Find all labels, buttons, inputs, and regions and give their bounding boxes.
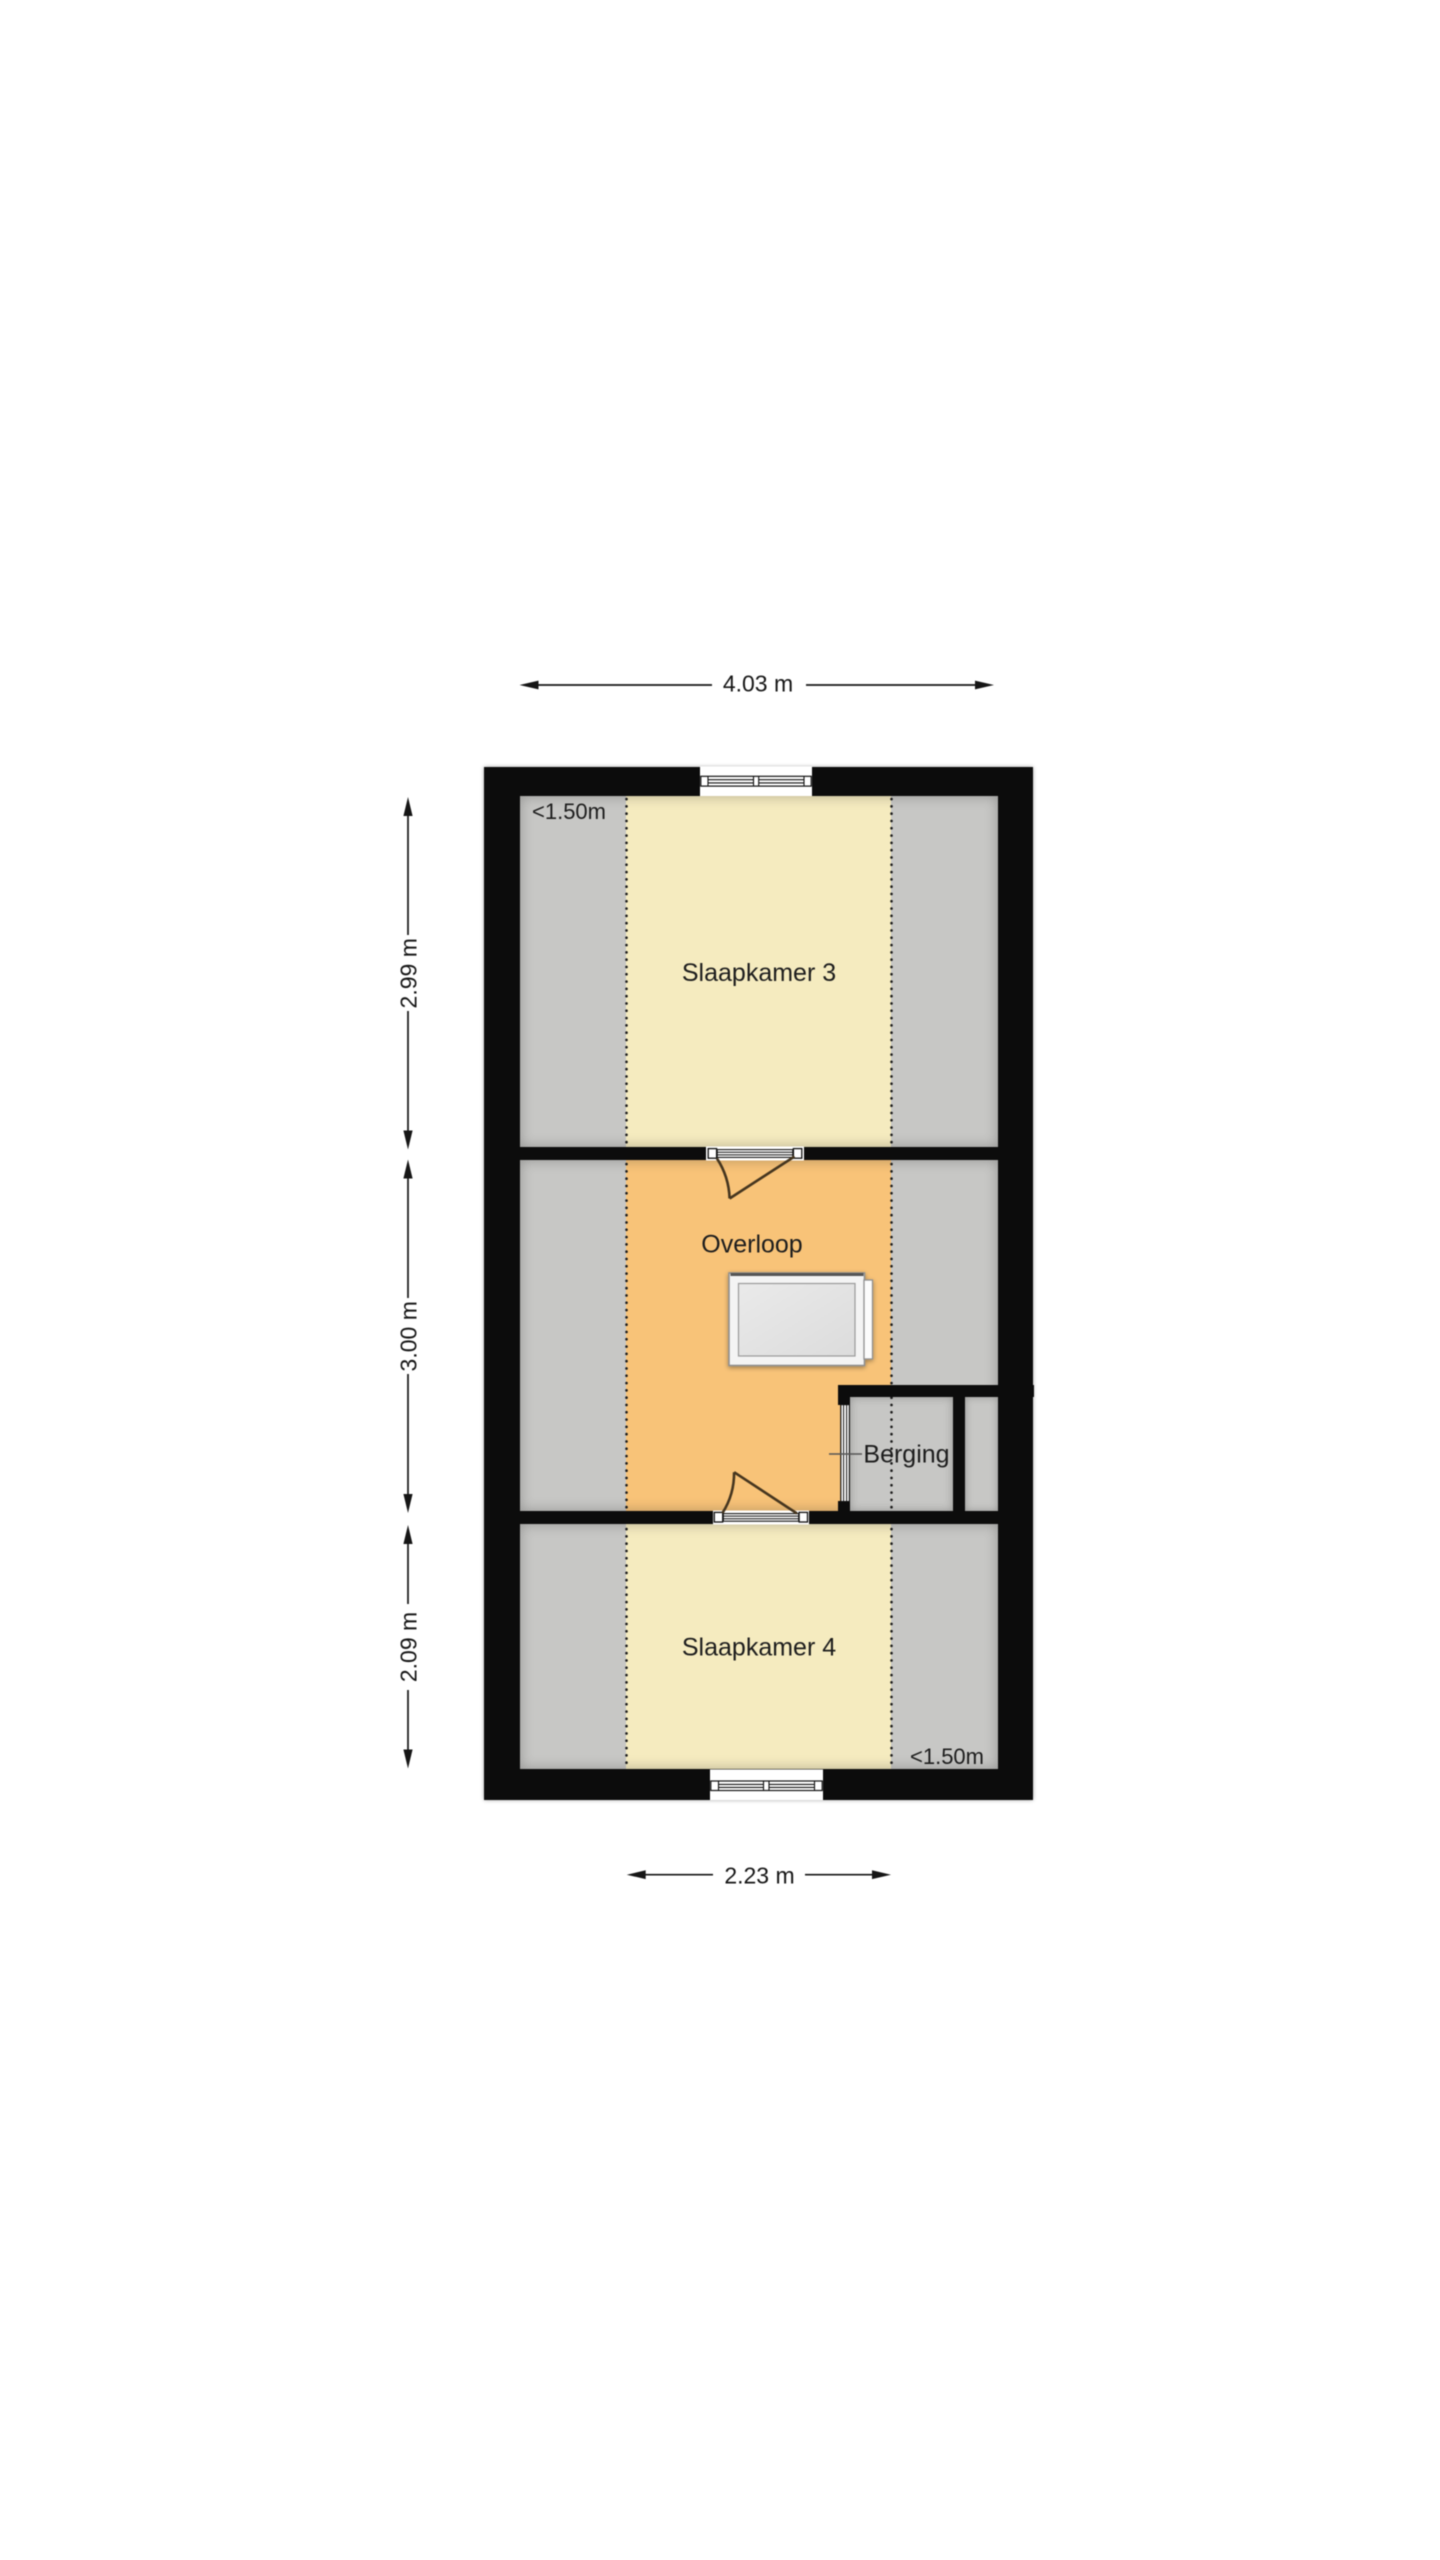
svg-text:2.99 m: 2.99 m <box>395 938 421 1008</box>
svg-text:4.03 m: 4.03 m <box>723 671 793 697</box>
svg-text:Slaapkamer 3: Slaapkamer 3 <box>682 959 836 987</box>
svg-text:Overloop: Overloop <box>701 1231 802 1259</box>
svg-text:<1.50m: <1.50m <box>910 1744 984 1769</box>
svg-text:<1.50m: <1.50m <box>532 799 606 824</box>
svg-text:2.23 m: 2.23 m <box>724 1863 794 1889</box>
svg-text:Slaapkamer 4: Slaapkamer 4 <box>682 1634 836 1662</box>
svg-text:3.00 m: 3.00 m <box>395 1301 421 1371</box>
svg-text:Berging: Berging <box>863 1441 949 1469</box>
svg-text:2.09 m: 2.09 m <box>395 1612 421 1682</box>
